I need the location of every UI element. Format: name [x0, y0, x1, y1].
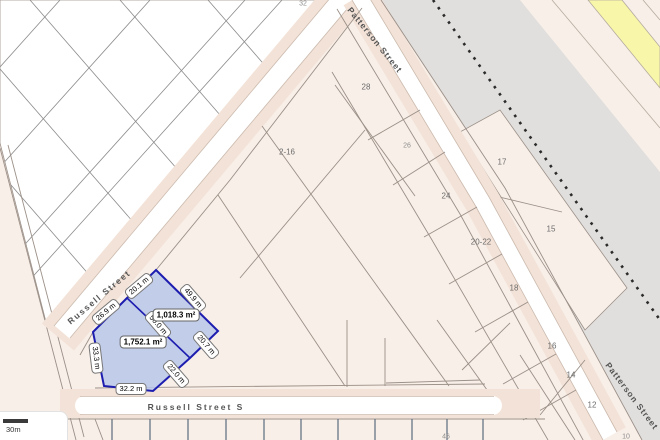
scale-bar: [3, 419, 28, 423]
russell-street-s-road: [60, 389, 540, 418]
map-geometry: [0, 0, 660, 440]
scale-label: 30m: [6, 425, 21, 434]
scale-control: 30m: [0, 411, 68, 440]
map-canvas[interactable]: Russell Street Russell Street S Patterso…: [0, 0, 660, 440]
